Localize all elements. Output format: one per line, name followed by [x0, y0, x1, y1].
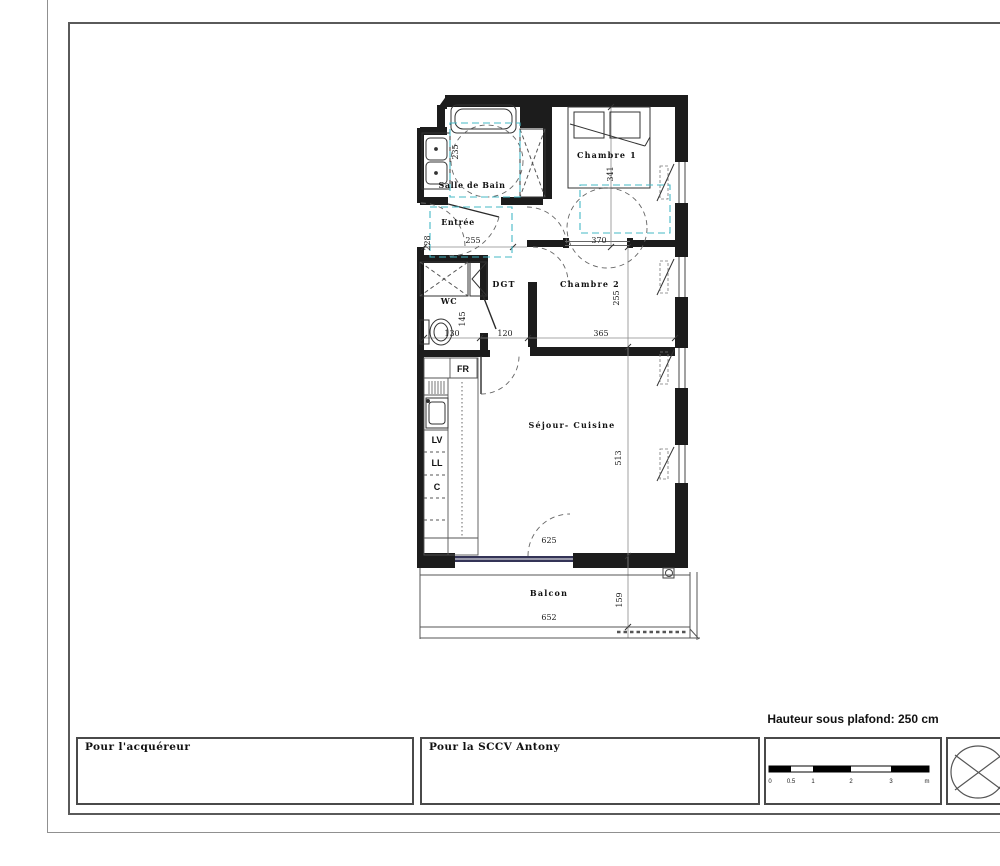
- drawing-sheet: Salle de Bain Entrée WC DGT Chambre 1 Ch…: [0, 0, 1000, 866]
- rain-pipe-icon: [663, 568, 674, 578]
- dim-chambre1-height: 341: [606, 166, 615, 181]
- dim-sdb-height: 235: [451, 144, 460, 159]
- scale-tick-2: 2: [849, 779, 853, 785]
- scale-tick-0: 0: [768, 779, 772, 785]
- dim-balcon-width: 652: [541, 613, 556, 622]
- room-label-chambre1: Chambre 1: [577, 150, 637, 160]
- acquirer-label: Pour l'acquéreur: [85, 741, 190, 753]
- kitchen-sink-icon: [426, 381, 448, 428]
- duct-shaft-icon: [520, 129, 545, 197]
- windows: [455, 162, 688, 562]
- chambre2-door-swing: [533, 247, 568, 282]
- logo-placeholder: [948, 739, 1000, 803]
- dim-entree-width: 255: [465, 236, 480, 245]
- dim-chambre2-height: 255: [612, 290, 621, 305]
- dim-sejour-height: 513: [614, 450, 623, 465]
- dim-wc-width: 130: [444, 329, 459, 338]
- window-chambre1-icon: [657, 162, 688, 203]
- scale-bar: 0 0.5 1 2 3 m: [768, 758, 938, 792]
- room-label-wc: WC: [440, 296, 458, 306]
- scale-tick-3: 3: [889, 779, 893, 785]
- developer-label: Pour la SCCV Antony: [429, 741, 560, 753]
- appliance-label-dishwasher: LV: [432, 435, 443, 445]
- sejour-door-swing: [481, 356, 519, 394]
- room-label-sejour: Séjour- Cuisine: [529, 420, 616, 430]
- turning-circle-chambre1: [567, 188, 647, 268]
- logo-circle-icon: [951, 746, 1000, 798]
- appliance-label-cooker: C: [434, 482, 441, 492]
- scale-tick-1: 1: [811, 779, 815, 785]
- room-label-entree: Entrée: [441, 217, 475, 227]
- appliance-label-washer: LL: [432, 458, 443, 468]
- room-label-dgt: DGT: [492, 279, 515, 289]
- bathtub-icon: [451, 105, 516, 133]
- room-label-salle-de-bain: Salle de Bain: [439, 180, 506, 190]
- ceiling-height-note: Hauteur sous plafond: 250 cm: [764, 712, 942, 726]
- dim-wc-height: 145: [458, 311, 467, 326]
- dim-chambre1-width: 370: [591, 236, 606, 245]
- scale-tick-m: m: [925, 779, 930, 785]
- balcony-outline: [420, 568, 700, 640]
- scale-tick-05: 0.5: [787, 779, 796, 785]
- bay-window-icon: [455, 556, 573, 562]
- room-label-balcon: Balcon: [530, 588, 568, 598]
- dim-balcon-height: 159: [615, 592, 624, 607]
- closet-icon: [420, 262, 468, 296]
- room-label-chambre2: Chambre 2: [560, 279, 620, 289]
- balcony-door-swing: [528, 514, 570, 556]
- dim-chambre2-width: 365: [593, 329, 608, 338]
- dim-dgt-width: 120: [497, 329, 512, 338]
- dim-sejour-width: 625: [541, 536, 556, 545]
- dim-entree-height: 228: [423, 235, 432, 250]
- window-sejour-lower-icon: [657, 445, 688, 483]
- window-chambre2-icon: [657, 257, 688, 297]
- appliance-label-fridge: FR: [457, 364, 469, 374]
